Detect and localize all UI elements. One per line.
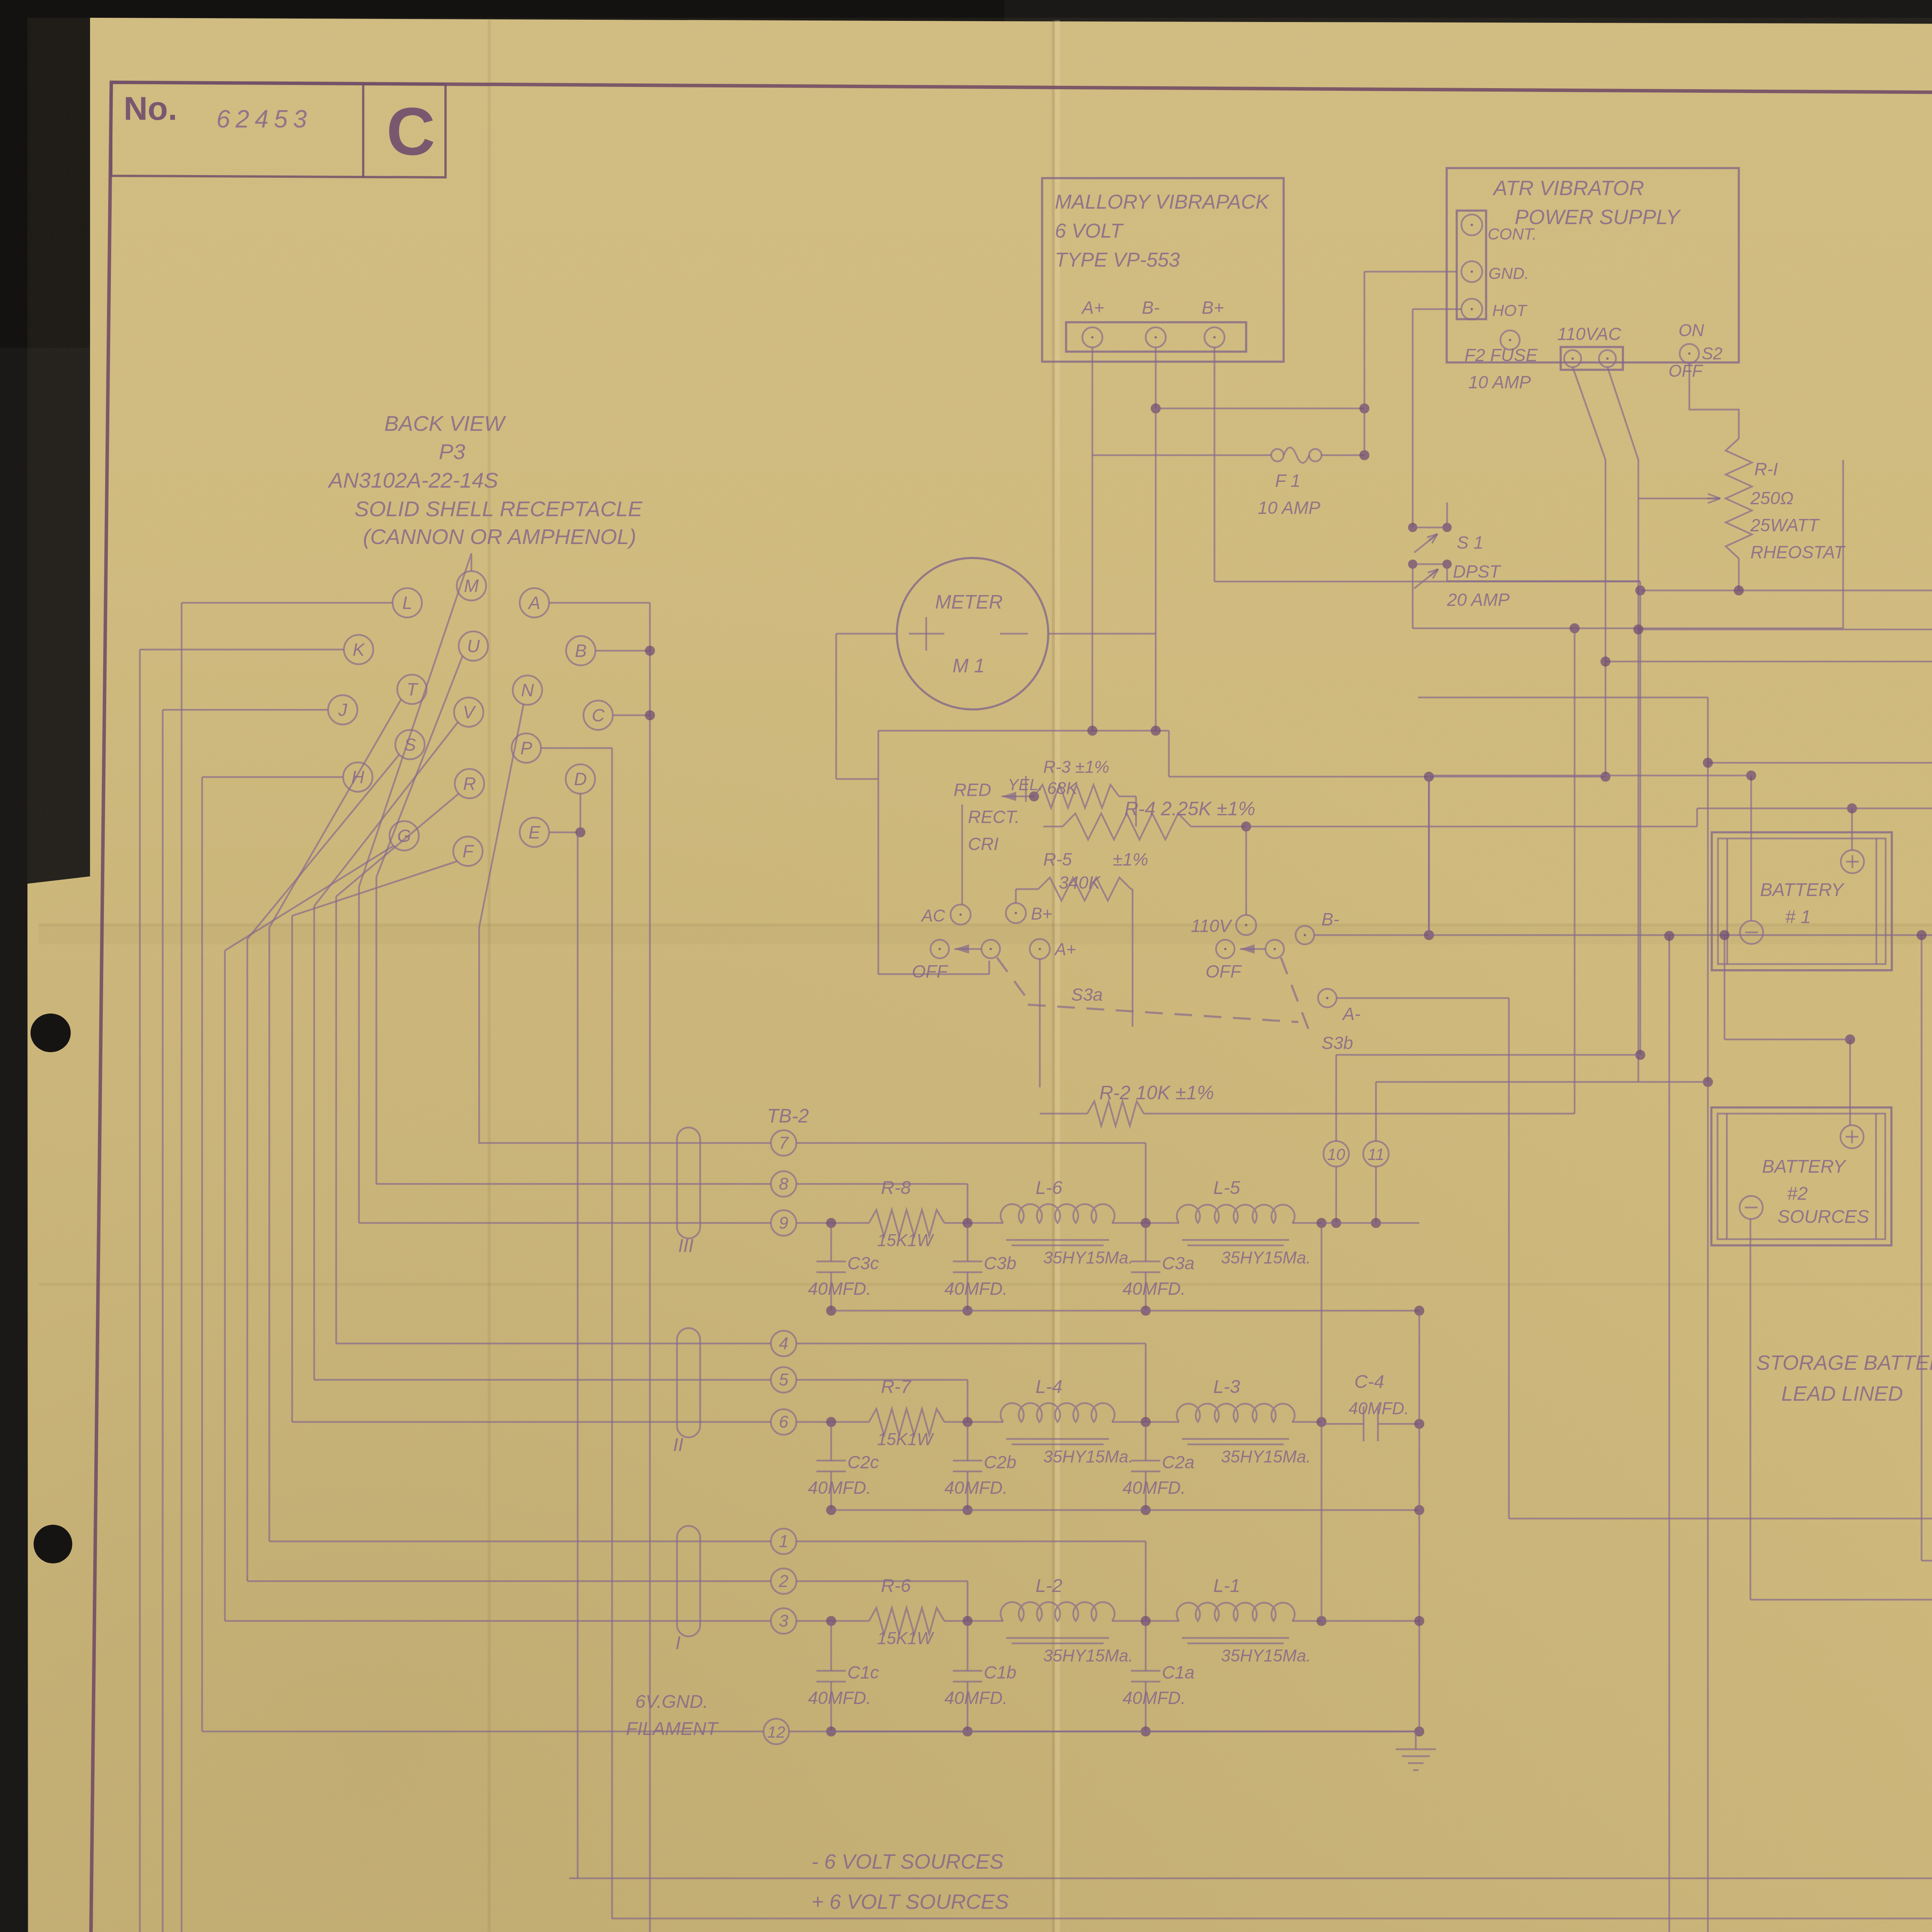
svg-text:C: C — [592, 705, 605, 725]
svg-text:ON: ON — [1679, 321, 1704, 340]
svg-text:MALLORY VIBRAPACK: MALLORY VIBRAPACK — [1055, 190, 1270, 213]
svg-text:BACK VIEW: BACK VIEW — [384, 411, 506, 435]
svg-text:L-6: L-6 — [1036, 1177, 1063, 1198]
svg-text:L-5: L-5 — [1213, 1177, 1240, 1198]
svg-text:B: B — [575, 641, 587, 661]
svg-text:I: I — [675, 1633, 680, 1653]
svg-text:7: 7 — [779, 1133, 789, 1152]
svg-text:L-3: L-3 — [1213, 1376, 1240, 1397]
svg-text:L-1: L-1 — [1213, 1575, 1240, 1596]
svg-text:40MFD.: 40MFD. — [944, 1478, 1008, 1498]
svg-text:- 6 VOLT SOURCES: - 6 VOLT SOURCES — [811, 1850, 1003, 1873]
svg-text:C-4: C-4 — [1354, 1371, 1384, 1392]
svg-text:DPST: DPST — [1453, 561, 1502, 582]
svg-text:FILAMENT: FILAMENT — [626, 1718, 719, 1739]
svg-text:10: 10 — [1327, 1145, 1345, 1163]
svg-text:35HY15Ma.: 35HY15Ma. — [1221, 1447, 1311, 1466]
svg-text:9: 9 — [779, 1213, 788, 1232]
svg-text:R-4 2.25K ±1%: R-4 2.25K ±1% — [1124, 798, 1255, 820]
svg-text:8: 8 — [779, 1174, 789, 1193]
svg-text:15K1W: 15K1W — [877, 1231, 934, 1250]
svg-text:RED: RED — [954, 780, 991, 800]
svg-text:6 VOLT: 6 VOLT — [1055, 219, 1124, 242]
svg-text:ATR VIBRATOR: ATR VIBRATOR — [1492, 176, 1644, 199]
svg-text:B+: B+ — [1202, 298, 1224, 318]
svg-text:BATTERY: BATTERY — [1760, 879, 1845, 900]
svg-text:11: 11 — [1367, 1145, 1384, 1163]
svg-text:T: T — [406, 679, 418, 699]
svg-text:10 AMP: 10 AMP — [1468, 372, 1531, 392]
svg-text:BATTERY: BATTERY — [1762, 1156, 1847, 1177]
svg-text:S3a: S3a — [1071, 985, 1103, 1005]
svg-text:S3b: S3b — [1321, 1033, 1353, 1053]
svg-text:40MFD.: 40MFD. — [808, 1688, 871, 1708]
svg-text:LEAD LINED: LEAD LINED — [1781, 1382, 1903, 1405]
svg-text:C3a: C3a — [1162, 1253, 1194, 1273]
svg-text:F: F — [463, 841, 474, 861]
svg-text:R-5: R-5 — [1043, 849, 1072, 869]
svg-text:SOLID SHELL RECEPTACLE: SOLID SHELL RECEPTACLE — [355, 497, 643, 521]
svg-text:40MFD.: 40MFD. — [944, 1688, 1008, 1708]
svg-text:40MFD.: 40MFD. — [808, 1478, 871, 1498]
svg-text:P3: P3 — [439, 439, 466, 464]
svg-text:GND.: GND. — [1488, 264, 1529, 282]
svg-text:110 VAC: 110 VAC — [811, 1928, 893, 1932]
svg-text:1: 1 — [779, 1532, 788, 1551]
svg-text:II: II — [673, 1434, 684, 1455]
svg-text:2: 2 — [779, 1571, 788, 1590]
svg-text:No.: No. — [124, 90, 177, 127]
svg-text:V: V — [463, 702, 476, 722]
svg-text:40MFD.: 40MFD. — [1349, 1399, 1409, 1418]
svg-text:R-I: R-I — [1754, 459, 1778, 479]
svg-text:N: N — [521, 680, 534, 700]
svg-text:15K1W: 15K1W — [877, 1629, 934, 1648]
svg-text:C1c: C1c — [847, 1662, 879, 1682]
svg-text:K: K — [353, 639, 366, 660]
svg-text:TB-2: TB-2 — [767, 1105, 809, 1127]
svg-text:F2 FUSE: F2 FUSE — [1464, 345, 1538, 365]
svg-text:SOURCES: SOURCES — [1777, 1206, 1869, 1227]
svg-text:R-6: R-6 — [881, 1575, 911, 1596]
svg-text:A: A — [527, 593, 541, 613]
svg-text:6V.GND.: 6V.GND. — [635, 1691, 708, 1712]
svg-text:A+: A+ — [1081, 298, 1104, 318]
svg-text:D: D — [574, 769, 587, 789]
svg-text:15K1W: 15K1W — [877, 1430, 934, 1449]
svg-text:25WATT: 25WATT — [1750, 515, 1820, 535]
svg-text:12: 12 — [767, 1723, 786, 1741]
svg-text:OFF: OFF — [912, 961, 949, 981]
svg-text:35HY15Ma.: 35HY15Ma. — [1221, 1646, 1311, 1665]
svg-text:B-: B- — [1321, 909, 1339, 929]
svg-text:H: H — [351, 767, 364, 787]
svg-text:OFF: OFF — [1206, 961, 1242, 981]
svg-text:AN3102A-22-14S: AN3102A-22-14S — [328, 468, 498, 492]
svg-text:R-2 10K ±1%: R-2 10K ±1% — [1099, 1082, 1214, 1104]
svg-text:#2: #2 — [1787, 1183, 1808, 1204]
svg-text:F 1: F 1 — [1275, 471, 1301, 491]
svg-text:A-: A- — [1342, 1004, 1361, 1024]
svg-text:STORAGE BATTERIES: STORAGE BATTERIES — [1756, 1351, 1932, 1374]
svg-text:S 1: S 1 — [1457, 532, 1483, 553]
svg-text:TYPE VP-553: TYPE VP-553 — [1055, 248, 1180, 271]
svg-text:35HY15Ma.: 35HY15Ma. — [1043, 1248, 1133, 1267]
svg-text:40MFD.: 40MFD. — [1122, 1279, 1186, 1299]
svg-text:C2b: C2b — [984, 1452, 1016, 1472]
svg-text:B-: B- — [1142, 298, 1160, 318]
svg-text:250Ω: 250Ω — [1750, 488, 1794, 508]
svg-text:L: L — [402, 593, 412, 613]
svg-text:6: 6 — [779, 1412, 789, 1431]
svg-text:S2: S2 — [1702, 344, 1723, 363]
svg-text:L-4: L-4 — [1036, 1376, 1062, 1397]
svg-text:C2c: C2c — [847, 1452, 879, 1472]
svg-text:L-2: L-2 — [1036, 1575, 1062, 1596]
svg-text:+ 6 VOLT SOURCES: + 6 VOLT SOURCES — [811, 1890, 1009, 1913]
svg-text:R-8: R-8 — [881, 1177, 911, 1198]
svg-text:P: P — [520, 738, 532, 758]
svg-text:40MFD.: 40MFD. — [808, 1279, 871, 1299]
svg-text:35HY15Ma.: 35HY15Ma. — [1043, 1646, 1133, 1665]
svg-text:35HY15Ma.: 35HY15Ma. — [1221, 1248, 1311, 1267]
svg-text:R: R — [463, 774, 476, 794]
svg-text:E: E — [529, 822, 541, 842]
svg-text:# 1: # 1 — [1785, 906, 1811, 927]
svg-text:M: M — [464, 576, 479, 596]
svg-text:35HY15Ma.: 35HY15Ma. — [1043, 1447, 1133, 1466]
svg-text:4: 4 — [779, 1334, 788, 1353]
svg-text:R-7: R-7 — [881, 1376, 912, 1397]
svg-text:RECT.: RECT. — [968, 807, 1020, 827]
svg-text:10 AMP: 10 AMP — [1258, 498, 1320, 518]
svg-text:(CANNON OR AMPHENOL): (CANNON OR AMPHENOL) — [363, 524, 636, 549]
svg-text:OFF: OFF — [1668, 361, 1703, 380]
svg-text:METER: METER — [935, 591, 1003, 613]
svg-text:B+: B+ — [1031, 904, 1052, 923]
svg-text:±1%: ±1% — [1113, 849, 1148, 869]
svg-text:20 AMP: 20 AMP — [1447, 590, 1510, 610]
svg-text:A+: A+ — [1054, 940, 1076, 959]
svg-text:CRI: CRI — [968, 834, 998, 854]
svg-text:C2a: C2a — [1162, 1452, 1194, 1472]
svg-text:III: III — [678, 1235, 694, 1256]
svg-text:110VAC: 110VAC — [1557, 324, 1621, 344]
svg-text:M 1: M 1 — [952, 655, 985, 677]
svg-text:C: C — [386, 94, 435, 169]
svg-text:R-3 ±1%: R-3 ±1% — [1043, 757, 1109, 776]
svg-text:U: U — [467, 636, 480, 656]
svg-text:40MFD.: 40MFD. — [944, 1279, 1008, 1299]
svg-text:3: 3 — [779, 1611, 789, 1630]
svg-text:C1b: C1b — [984, 1662, 1016, 1682]
svg-text:62453: 62453 — [216, 105, 312, 133]
svg-text:C3c: C3c — [847, 1253, 879, 1273]
svg-text:5: 5 — [779, 1370, 789, 1389]
svg-text:40MFD.: 40MFD. — [1122, 1688, 1186, 1708]
svg-text:C3b: C3b — [984, 1253, 1016, 1273]
svg-text:AC: AC — [920, 906, 946, 925]
svg-text:RHEOSTAT: RHEOSTAT — [1750, 542, 1846, 562]
svg-text:HOT: HOT — [1492, 301, 1528, 320]
svg-text:CONT.: CONT. — [1488, 225, 1537, 243]
svg-text:POWER SUPPLY: POWER SUPPLY — [1515, 205, 1681, 228]
svg-text:110V: 110V — [1191, 916, 1233, 936]
svg-text:J: J — [338, 700, 348, 720]
svg-text:40MFD.: 40MFD. — [1122, 1478, 1186, 1498]
svg-text:C1a: C1a — [1162, 1662, 1194, 1682]
